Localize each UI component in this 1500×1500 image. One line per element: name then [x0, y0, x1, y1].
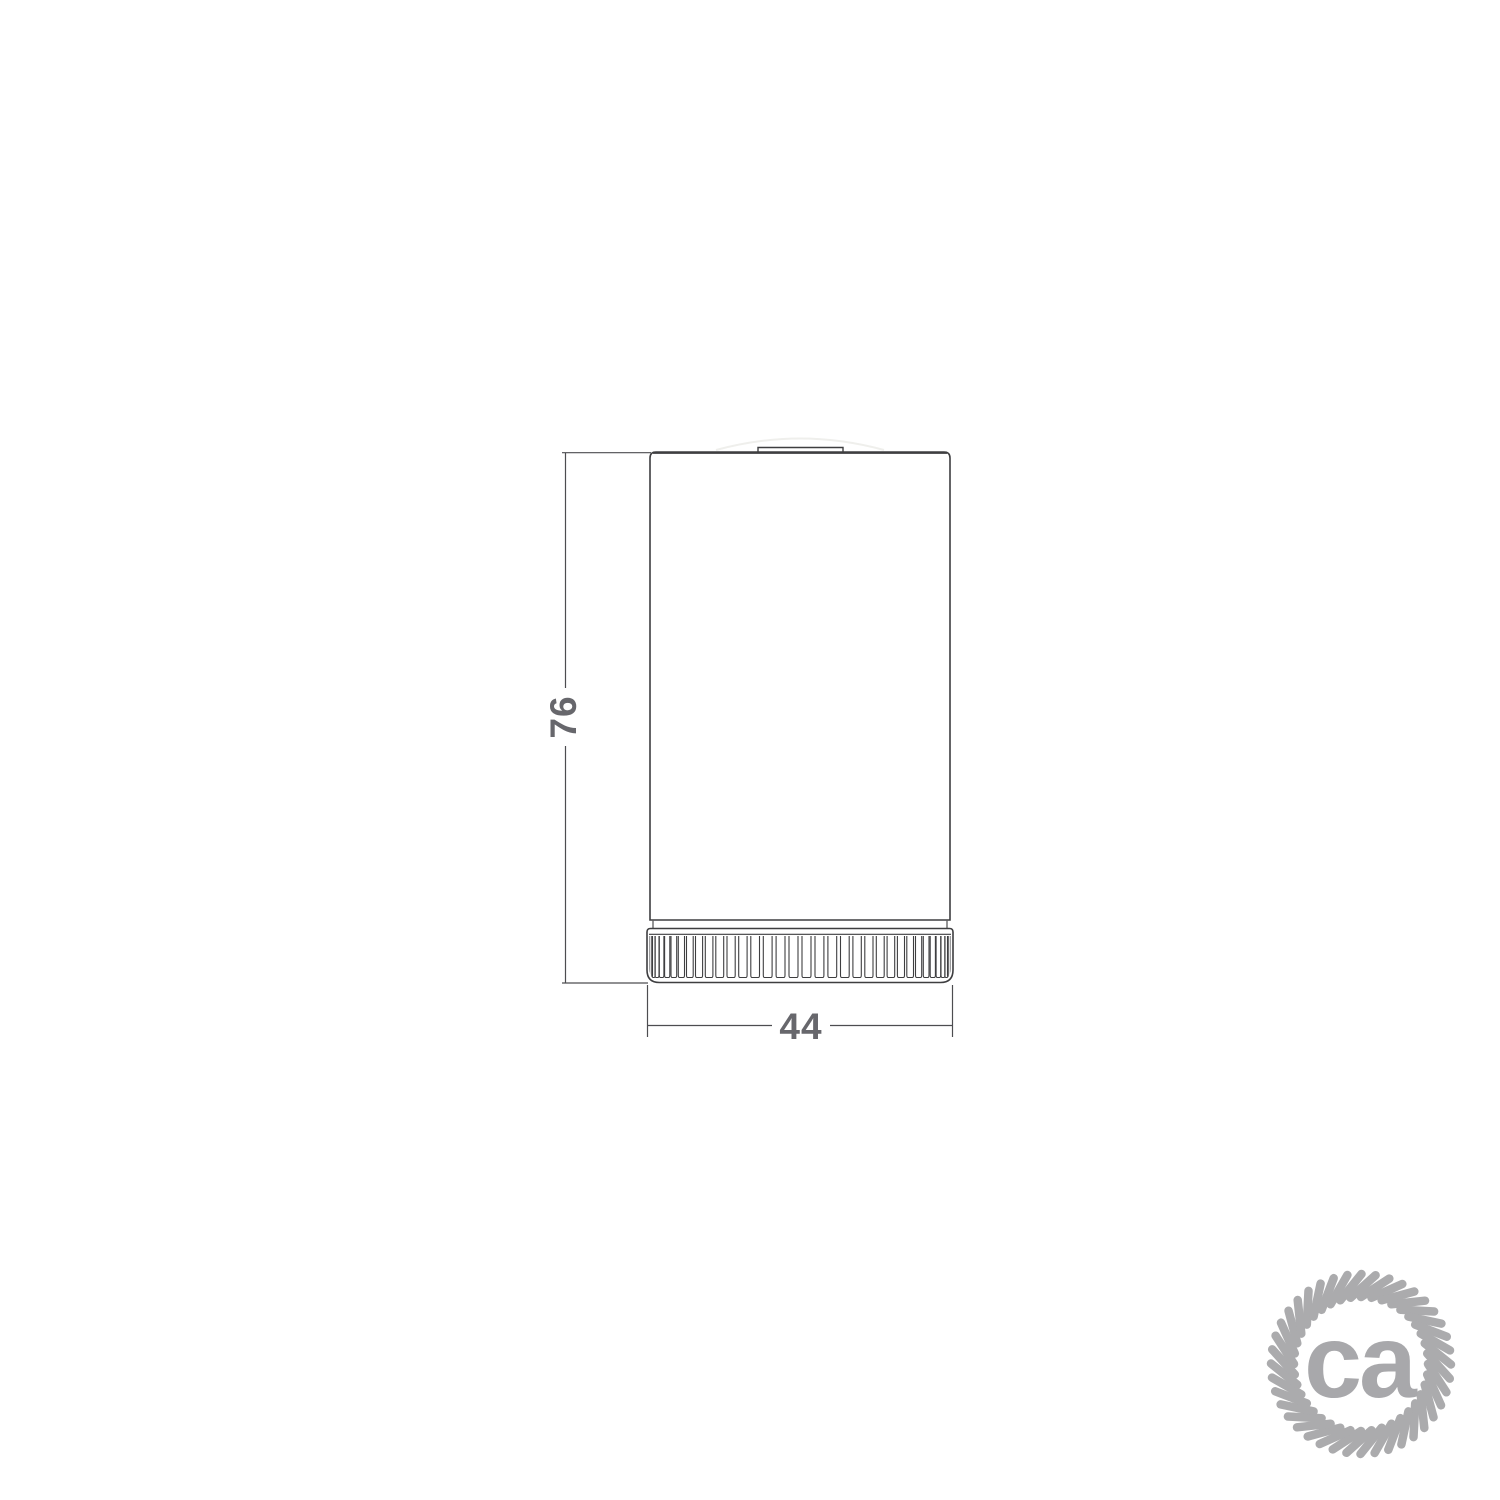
width-dimension: 44 [647, 985, 953, 1047]
rope-strand [1298, 1300, 1302, 1334]
width-dim-label: 44 [779, 1006, 822, 1047]
top-hint-arc [716, 439, 884, 451]
rope-strand [1421, 1394, 1425, 1428]
brand-logo-text: ca [1304, 1304, 1418, 1420]
height-dim-label: 76 [543, 695, 584, 738]
height-dimension: 76 [543, 453, 651, 983]
rope-strand [1297, 1424, 1331, 1428]
brand-logo: ca [1271, 1274, 1451, 1454]
technical-drawing: 76 44 ca [0, 0, 1500, 1500]
cylinder-body-outline [650, 452, 950, 920]
page-canvas: 76 44 ca [0, 0, 1500, 1500]
